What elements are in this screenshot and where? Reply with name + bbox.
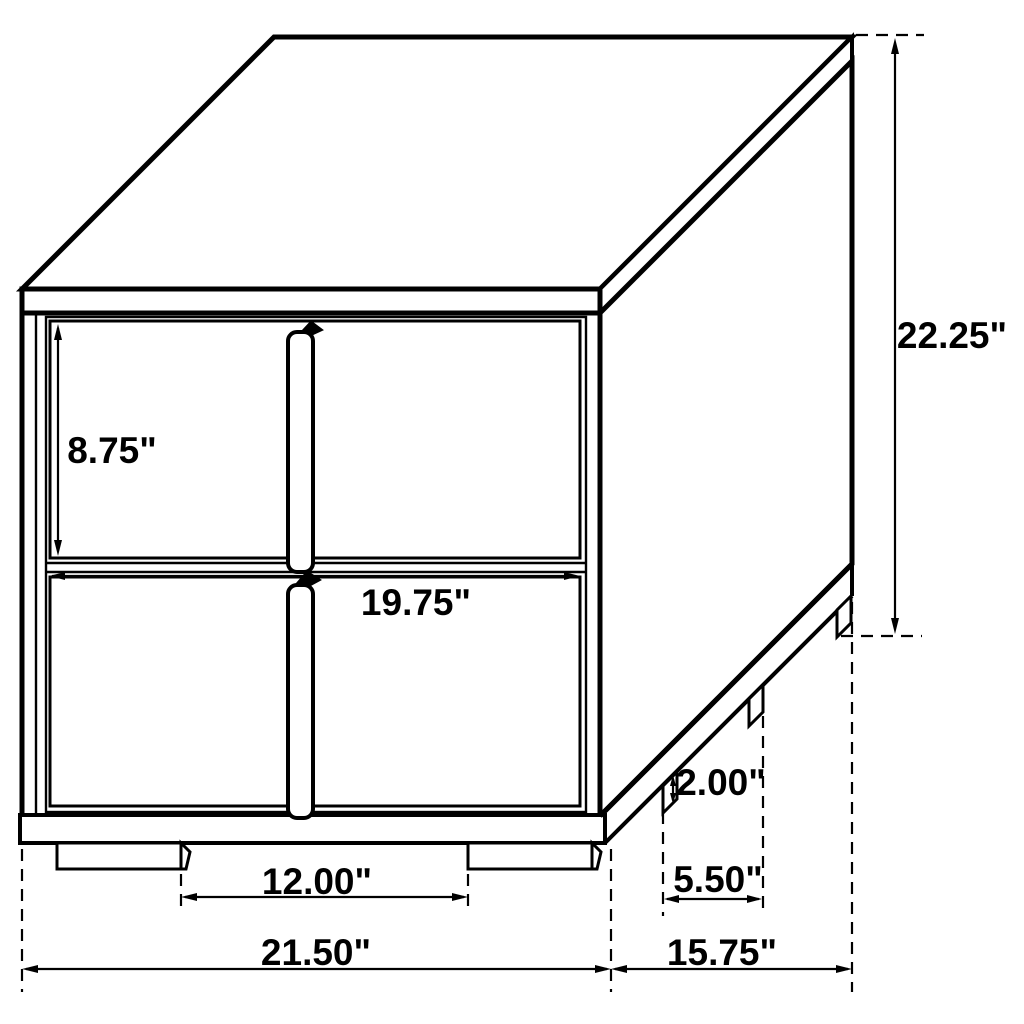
nightstand-dimension-diagram: 8.75" 19.75" 22.25" 2.00" 5.50" (0, 0, 1024, 1024)
dim-overall-height: 22.25" (841, 35, 1007, 636)
side-middle-foot (749, 685, 763, 726)
side-back-foot (837, 596, 851, 637)
plinth-front (20, 815, 605, 843)
dim-front-feet-spacing: 12.00" (181, 861, 468, 914)
dim-label-drawer-height: 8.75" (67, 430, 157, 471)
dim-label-front-feet-spacing: 12.00" (262, 861, 372, 902)
front-right-foot-side (592, 843, 601, 869)
front-left-foot-side (181, 843, 190, 869)
front-right-foot (468, 843, 592, 869)
dim-label-side-feet-spacing: 5.50" (673, 859, 763, 900)
dim-foot-height: 2.00" (670, 762, 766, 804)
dim-label-overall-depth: 15.75" (667, 932, 777, 973)
nightstand-technical-drawing: 8.75" 19.75" 22.25" 2.00" 5.50" (0, 0, 1024, 1024)
side-front-foot (663, 772, 677, 813)
dim-label-overall-width: 21.50" (261, 932, 371, 973)
dim-side-feet-spacing: 5.50" (663, 716, 763, 916)
top-edge-front (22, 289, 600, 313)
dim-label-front-width: 19.75" (361, 582, 471, 623)
dim-label-foot-height: 2.00" (676, 762, 766, 803)
top-drawer-handle (288, 332, 313, 572)
bottom-drawer-handle (288, 585, 313, 818)
dim-label-overall-height: 22.25" (897, 315, 1007, 356)
front-left-foot (57, 843, 181, 869)
